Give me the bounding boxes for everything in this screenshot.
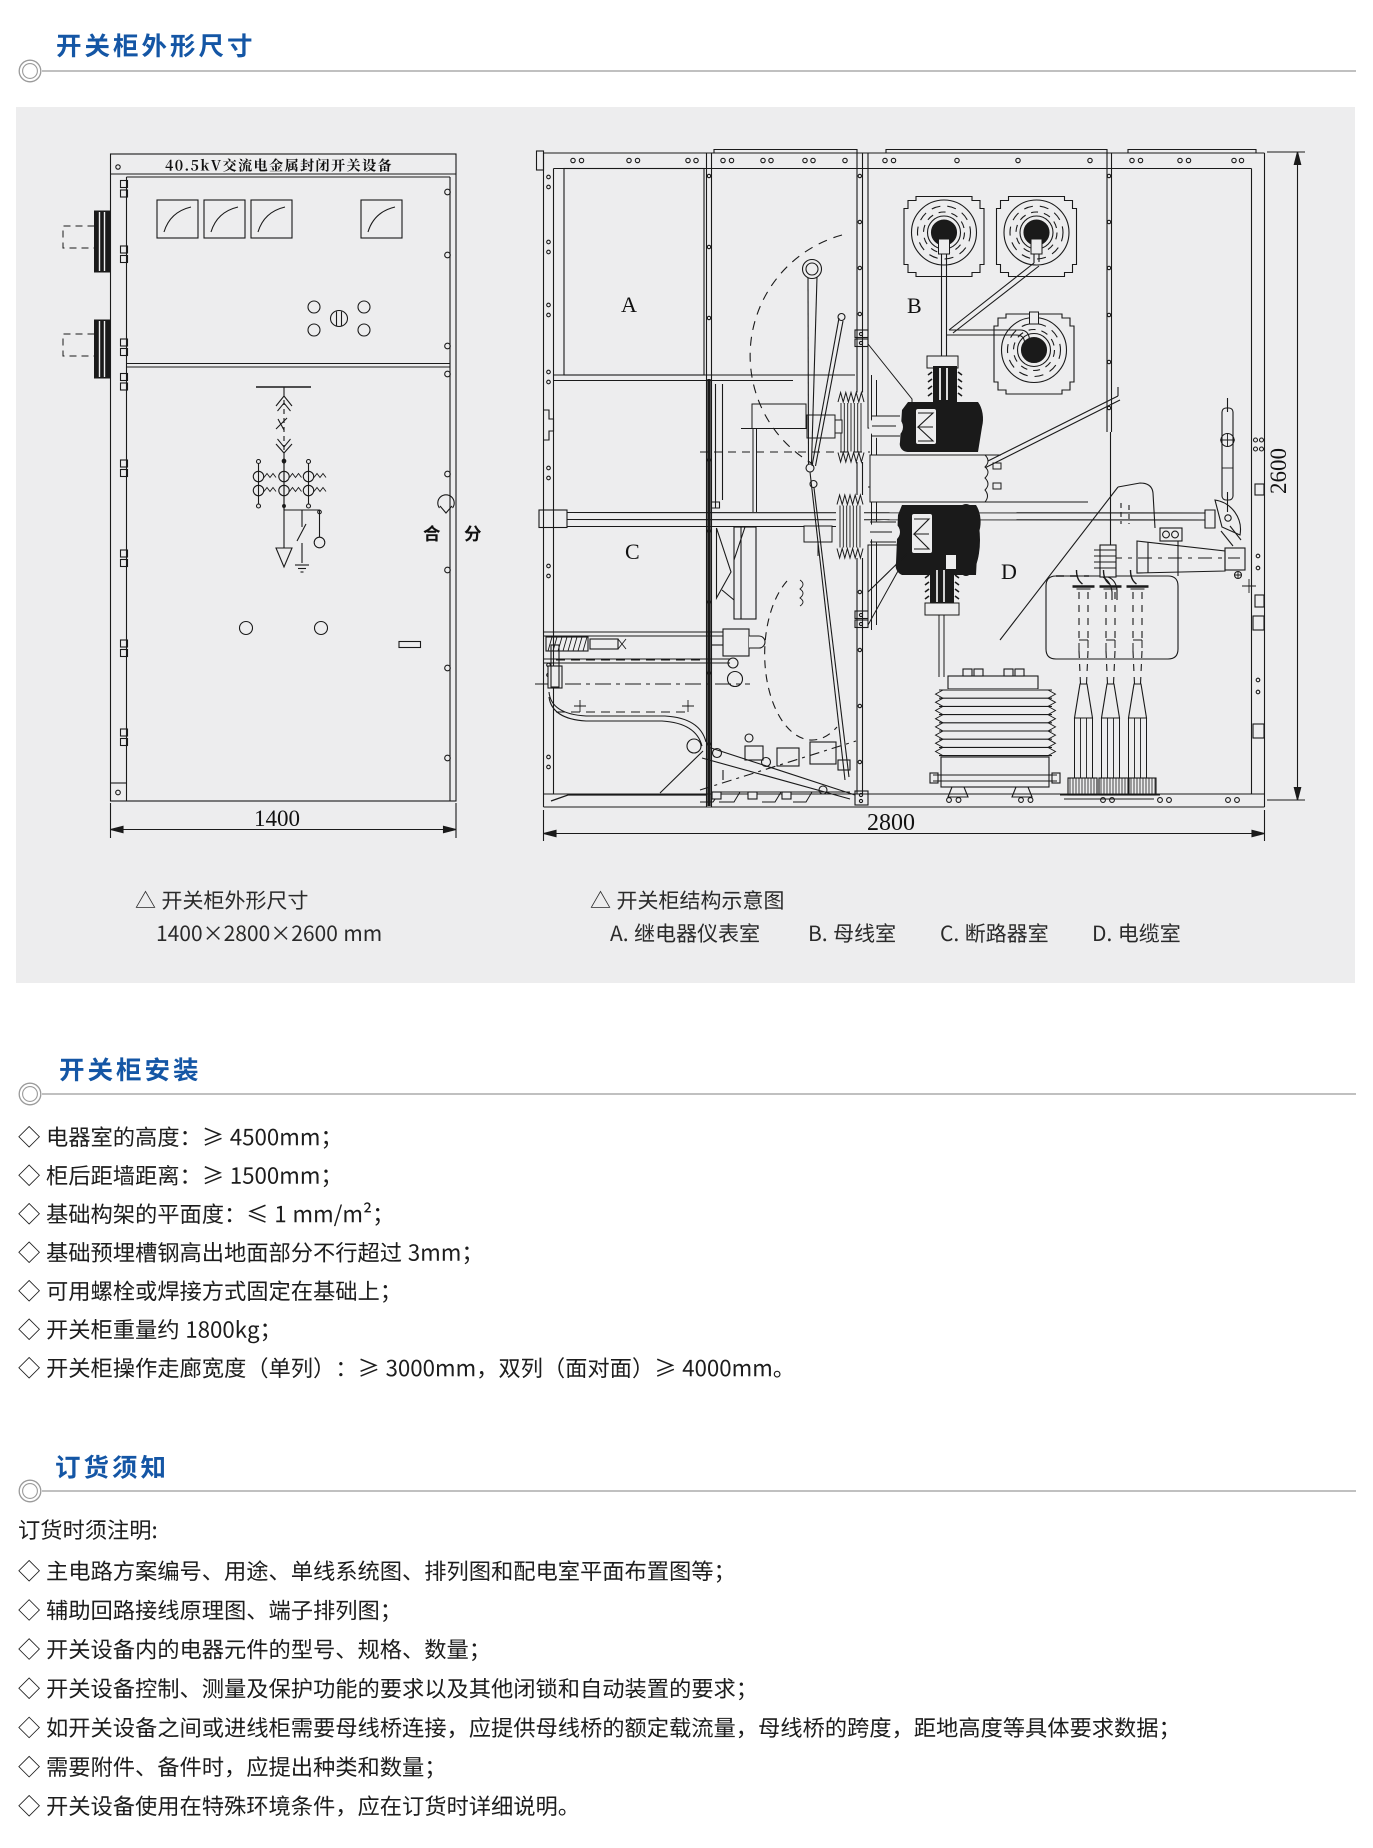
svg-text:2800: 2800 — [867, 810, 915, 836]
svg-text:2600: 2600 — [1266, 448, 1291, 494]
svg-text:1400: 1400 — [254, 806, 300, 831]
svg-text:C: C — [625, 539, 640, 564]
svg-text:A: A — [621, 292, 637, 317]
svg-text:D: D — [1001, 559, 1017, 584]
svg-text:B: B — [907, 293, 922, 318]
